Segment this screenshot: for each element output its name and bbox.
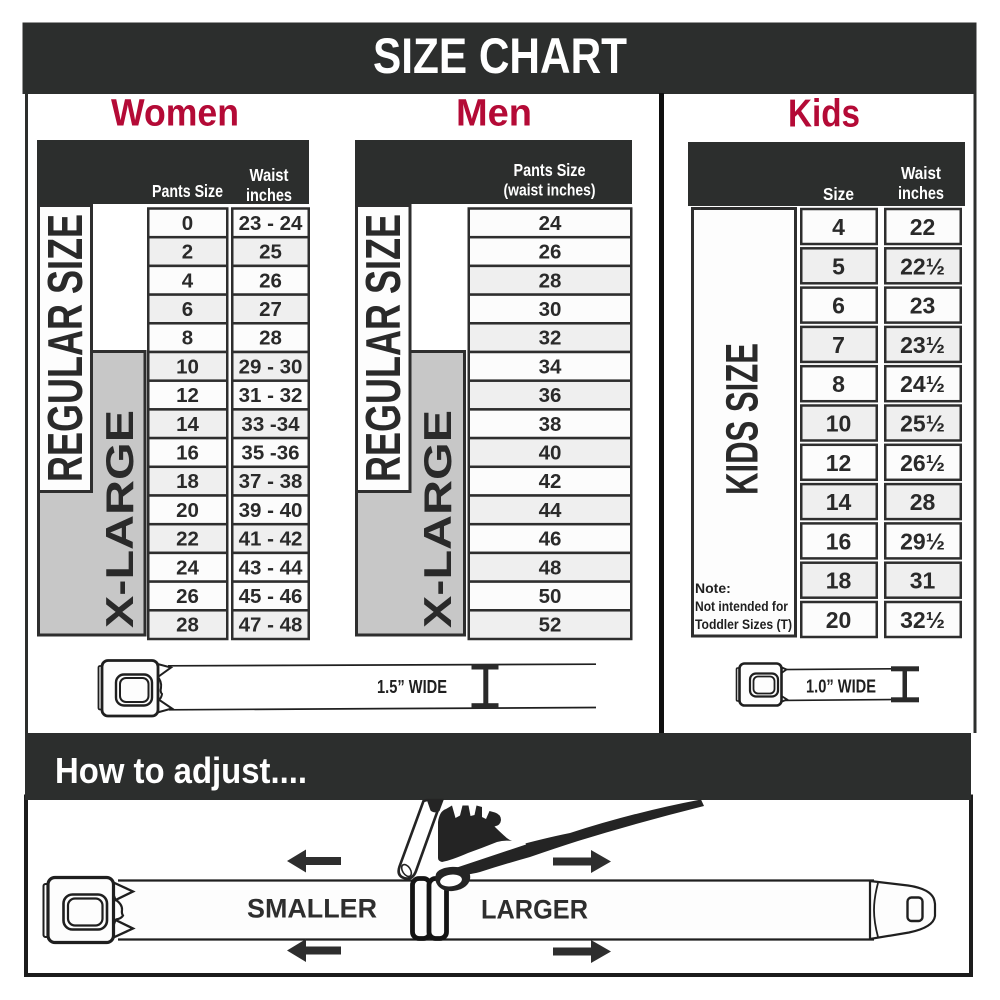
svg-text:Size: Size xyxy=(823,184,854,204)
svg-text:6: 6 xyxy=(832,293,845,319)
svg-text:1.5” WIDE: 1.5” WIDE xyxy=(377,677,447,697)
svg-text:8: 8 xyxy=(832,371,845,397)
svg-text:7: 7 xyxy=(832,332,845,358)
svg-text:Kids: Kids xyxy=(788,93,860,136)
svg-text:inches: inches xyxy=(246,185,292,205)
svg-text:12: 12 xyxy=(826,450,852,476)
svg-text:38: 38 xyxy=(539,413,562,436)
svg-text:23: 23 xyxy=(910,293,936,319)
svg-text:LARGER: LARGER xyxy=(481,895,588,925)
svg-text:Men: Men xyxy=(456,93,532,135)
svg-text:12: 12 xyxy=(176,384,199,407)
svg-text:25: 25 xyxy=(259,241,282,264)
svg-text:32: 32 xyxy=(539,327,562,350)
svg-text:36: 36 xyxy=(539,384,562,407)
svg-text:16: 16 xyxy=(826,528,852,554)
svg-text:42: 42 xyxy=(539,470,562,493)
svg-text:6: 6 xyxy=(182,298,193,321)
svg-text:(waist inches): (waist inches) xyxy=(504,182,596,200)
svg-text:SMALLER: SMALLER xyxy=(247,894,377,924)
svg-text:Toddler Sizes (T): Toddler Sizes (T) xyxy=(695,616,792,632)
svg-text:1.0” WIDE: 1.0” WIDE xyxy=(806,677,876,697)
svg-text:0: 0 xyxy=(182,212,193,235)
svg-text:X-LARGE: X-LARGE xyxy=(99,410,142,628)
svg-text:Note:: Note: xyxy=(695,580,731,596)
svg-text:KIDS SIZE: KIDS SIZE xyxy=(717,343,768,495)
svg-text:37 - 38: 37 - 38 xyxy=(239,470,303,493)
svg-text:27: 27 xyxy=(259,298,282,321)
svg-text:35 -36: 35 -36 xyxy=(241,441,299,464)
svg-text:47 - 48: 47 - 48 xyxy=(239,614,303,637)
svg-text:REGULAR SIZE: REGULAR SIZE xyxy=(357,214,411,482)
svg-text:2: 2 xyxy=(182,241,193,264)
svg-text:Women: Women xyxy=(111,93,239,135)
svg-text:43 - 44: 43 - 44 xyxy=(239,556,303,579)
svg-text:30: 30 xyxy=(539,298,562,321)
svg-text:26: 26 xyxy=(176,585,199,608)
svg-text:X-LARGE: X-LARGE xyxy=(417,410,460,628)
svg-text:46: 46 xyxy=(539,528,562,551)
svg-text:25½: 25½ xyxy=(900,411,945,437)
svg-text:26: 26 xyxy=(259,269,282,292)
svg-text:26: 26 xyxy=(539,241,562,264)
svg-text:24½: 24½ xyxy=(900,371,945,397)
svg-text:5: 5 xyxy=(832,253,845,279)
svg-text:4: 4 xyxy=(832,214,845,240)
svg-text:28: 28 xyxy=(176,614,199,637)
svg-text:29½: 29½ xyxy=(900,528,945,554)
svg-text:28: 28 xyxy=(910,489,936,515)
svg-text:Pants Size: Pants Size xyxy=(152,181,223,201)
svg-text:Not intended for: Not intended for xyxy=(695,598,788,614)
svg-text:8: 8 xyxy=(182,327,193,350)
svg-text:22½: 22½ xyxy=(900,253,945,279)
svg-text:45 - 46: 45 - 46 xyxy=(239,585,303,608)
svg-text:44: 44 xyxy=(539,499,562,522)
svg-text:18: 18 xyxy=(826,568,852,594)
svg-text:10: 10 xyxy=(176,355,199,378)
svg-text:52: 52 xyxy=(539,614,562,637)
svg-text:inches: inches xyxy=(898,183,944,203)
svg-text:41 - 42: 41 - 42 xyxy=(239,528,303,551)
svg-text:39 - 40: 39 - 40 xyxy=(239,499,303,522)
svg-text:14: 14 xyxy=(176,413,199,436)
svg-text:34: 34 xyxy=(539,355,562,378)
svg-text:SIZE CHART: SIZE CHART xyxy=(373,28,627,84)
svg-text:31: 31 xyxy=(910,568,936,594)
svg-text:48: 48 xyxy=(539,556,562,579)
svg-text:Pants Size: Pants Size xyxy=(514,160,586,180)
svg-text:4: 4 xyxy=(182,269,194,292)
svg-text:REGULAR SIZE: REGULAR SIZE xyxy=(39,214,93,482)
svg-text:10: 10 xyxy=(826,411,852,437)
svg-text:18: 18 xyxy=(176,470,199,493)
svg-text:22: 22 xyxy=(910,214,936,240)
svg-text:31 - 32: 31 - 32 xyxy=(239,384,303,407)
svg-text:24: 24 xyxy=(539,212,562,235)
svg-text:40: 40 xyxy=(539,441,562,464)
svg-text:23 - 24: 23 - 24 xyxy=(239,212,303,235)
svg-text:26½: 26½ xyxy=(900,450,945,476)
svg-text:Waist: Waist xyxy=(901,163,941,183)
svg-text:29 - 30: 29 - 30 xyxy=(239,355,303,378)
svg-text:23½: 23½ xyxy=(900,332,945,358)
svg-text:14: 14 xyxy=(826,489,852,515)
svg-text:50: 50 xyxy=(539,585,562,608)
svg-text:20: 20 xyxy=(826,607,852,633)
svg-text:28: 28 xyxy=(259,327,282,350)
svg-text:32½: 32½ xyxy=(900,607,945,633)
svg-text:28: 28 xyxy=(539,269,562,292)
svg-text:How to adjust....: How to adjust.... xyxy=(55,750,307,791)
svg-text:20: 20 xyxy=(176,499,199,522)
svg-text:16: 16 xyxy=(176,441,199,464)
svg-text:33 -34: 33 -34 xyxy=(241,413,300,436)
svg-text:24: 24 xyxy=(176,556,199,579)
svg-text:22: 22 xyxy=(176,528,199,551)
svg-text:Waist: Waist xyxy=(250,165,289,185)
